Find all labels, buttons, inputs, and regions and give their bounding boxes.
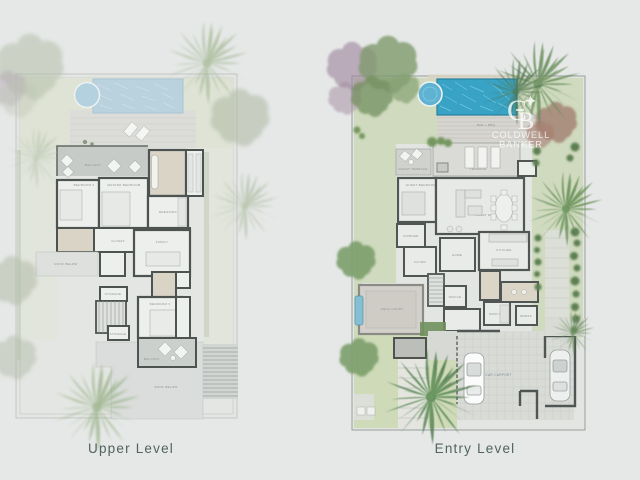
svg-text:GUEST BEDROOM: GUEST BEDROOM (406, 183, 437, 187)
svg-text:STORAGE: STORAGE (110, 332, 127, 336)
svg-text:DRESSING: DRESSING (159, 210, 177, 214)
svg-text:BEDROOM 3: BEDROOM 3 (150, 302, 171, 306)
svg-text:MASTER BEDROOM: MASTER BEDROOM (107, 183, 140, 187)
svg-text:Entry Level: Entry Level (435, 441, 516, 456)
svg-text:AQUA COURT: AQUA COURT (381, 307, 404, 311)
svg-text:ROOF BELOW: ROOF BELOW (54, 262, 77, 266)
svg-text:STORAGE: STORAGE (105, 292, 122, 296)
svg-text:Upper Level: Upper Level (88, 441, 174, 456)
svg-text:HOME: HOME (452, 253, 462, 257)
svg-text:DRESS: DRESS (520, 314, 532, 318)
svg-text:TERRACE: TERRACE (470, 167, 486, 171)
svg-text:CLOSET: CLOSET (111, 239, 125, 243)
svg-text:COLDWELL: COLDWELL (492, 130, 550, 140)
svg-text:BANKER: BANKER (499, 140, 543, 150)
svg-text:FOYER: FOYER (414, 260, 426, 264)
svg-text:BAR + BBQ: BAR + BBQ (477, 123, 496, 127)
svg-text:BALCONY: BALCONY (144, 357, 160, 361)
svg-text:ROOF BELOW: ROOF BELOW (154, 385, 177, 389)
svg-text:FAMILY: FAMILY (156, 240, 168, 244)
svg-text:OFFICE: OFFICE (449, 295, 462, 299)
svg-text:POWDER: POWDER (403, 234, 419, 238)
svg-text:BEDROOM 2: BEDROOM 2 (74, 183, 95, 187)
svg-text:BALCONY: BALCONY (85, 163, 101, 167)
svg-text:KITCHEN: KITCHEN (496, 248, 511, 252)
svg-text:GUEST TERRACE: GUEST TERRACE (398, 167, 427, 171)
svg-text:2 CAR CARPORT: 2 CAR CARPORT (482, 373, 512, 377)
svg-text:MAID'S: MAID'S (489, 312, 501, 316)
